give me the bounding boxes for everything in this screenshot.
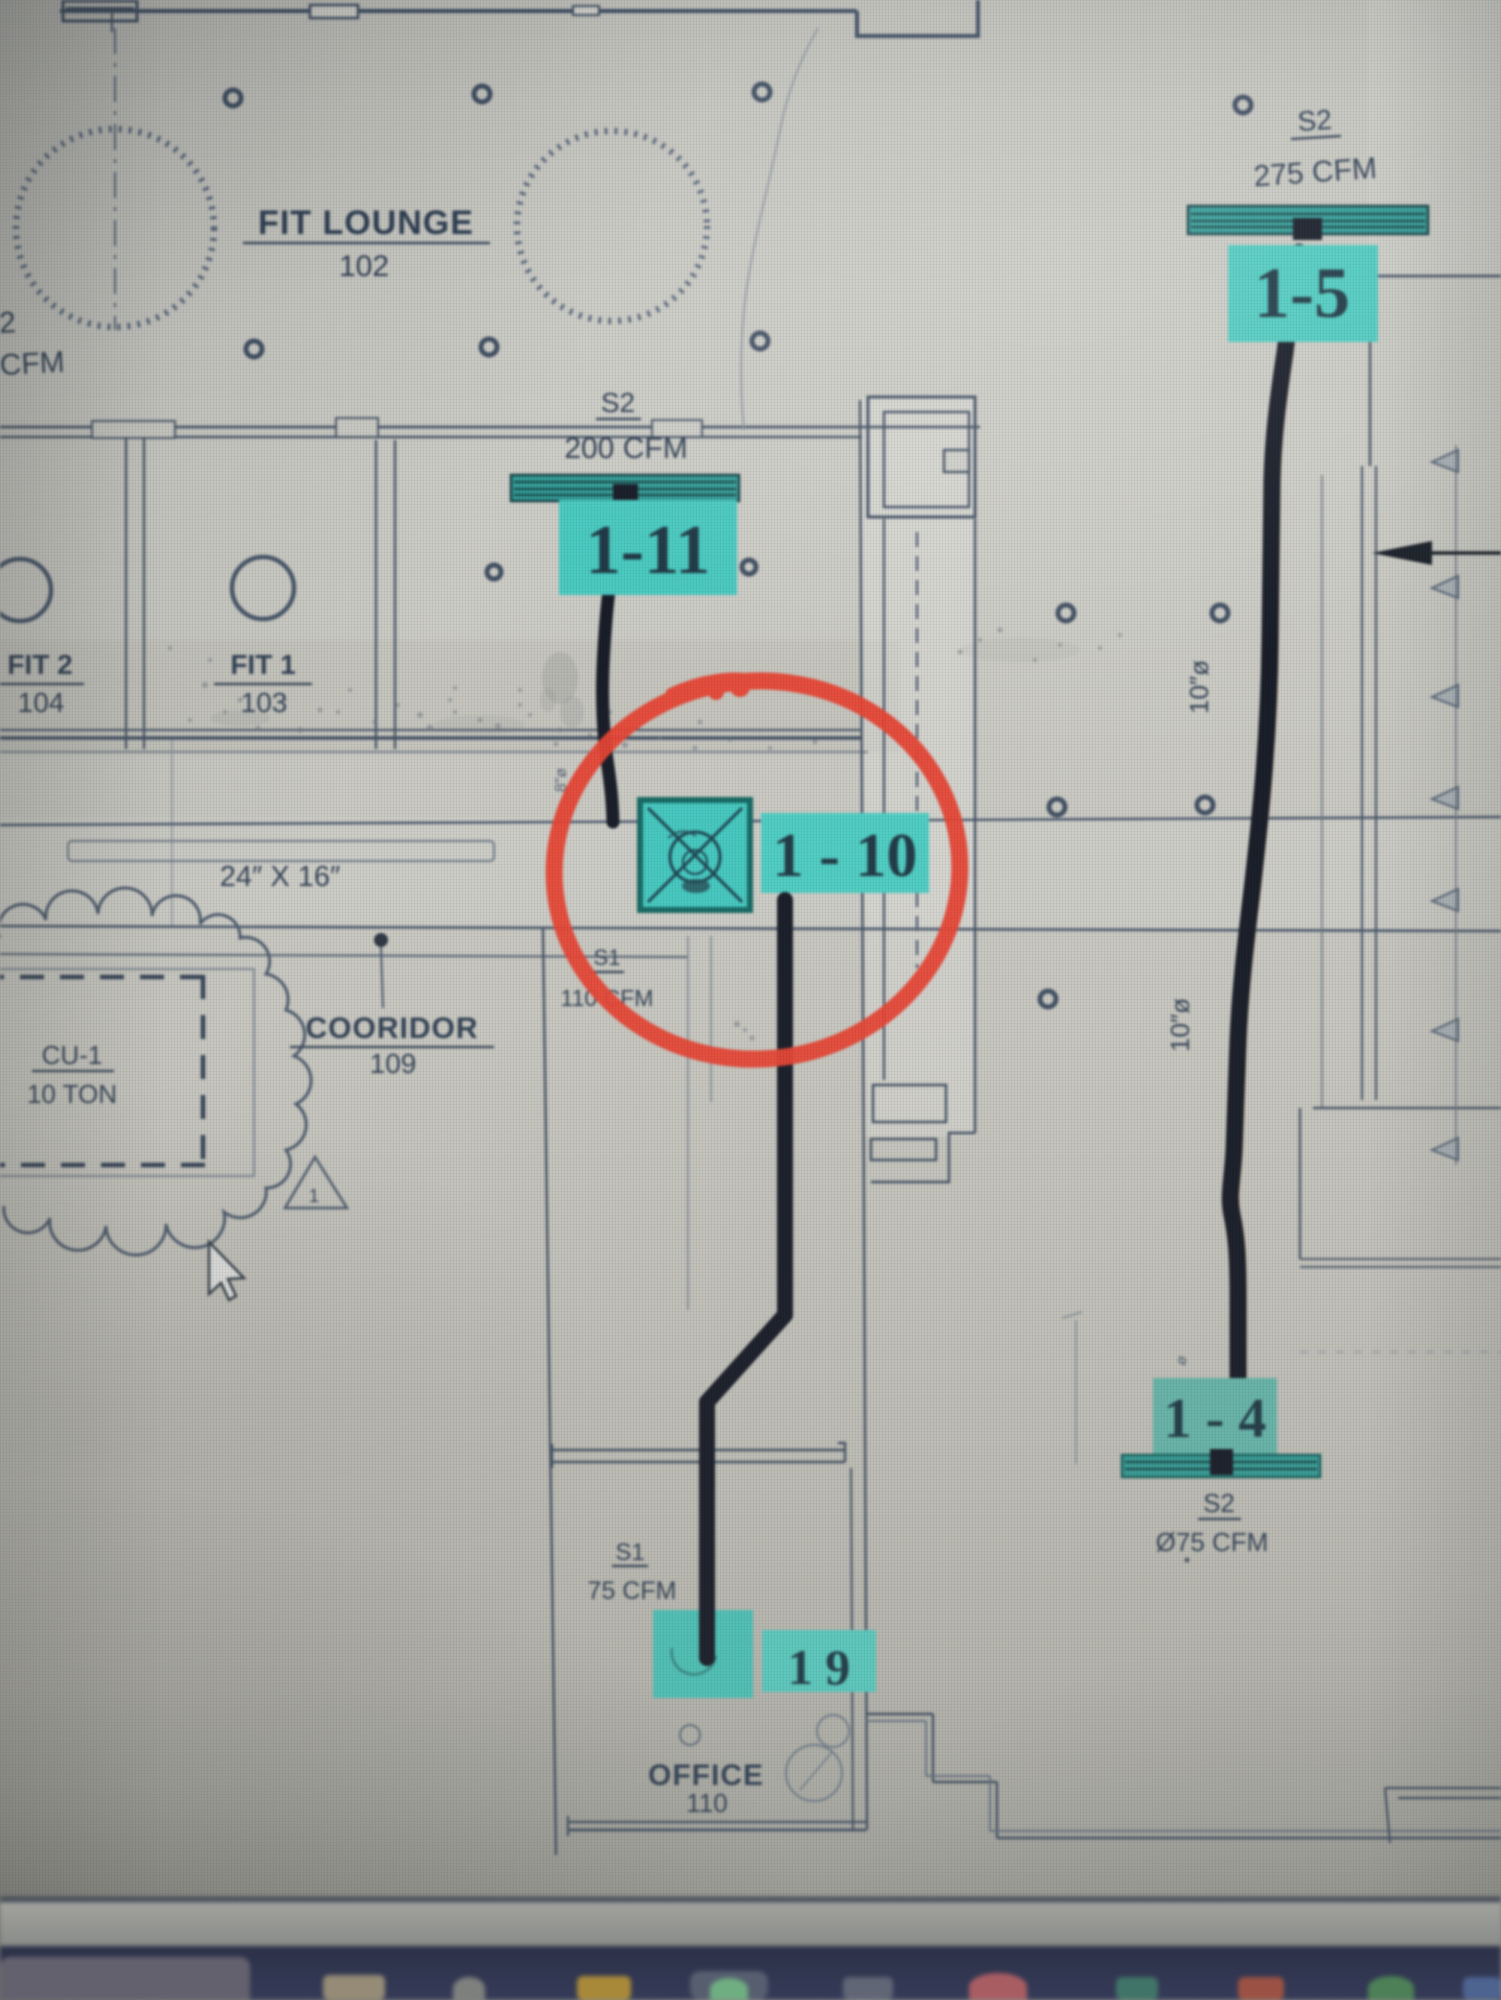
svg-text:10 TON: 10 TON — [27, 1079, 117, 1109]
svg-text:24″ X 16″: 24″ X 16″ — [220, 861, 341, 893]
svg-text:S2: S2 — [601, 387, 635, 418]
svg-text:S1: S1 — [615, 1539, 644, 1566]
svg-text:1 - 4: 1 - 4 — [1164, 1388, 1267, 1450]
svg-text:75 CFM: 75 CFM — [588, 1577, 677, 1605]
svg-text:FIT LOUNGE: FIT LOUNGE — [258, 204, 474, 242]
svg-text:CU-1: CU-1 — [42, 1040, 103, 1070]
svg-text:1 - 10: 1 - 10 — [773, 822, 918, 890]
svg-text:S2: S2 — [0, 306, 17, 341]
svg-text:1: 1 — [309, 1186, 319, 1206]
svg-text:FIT 2: FIT 2 — [7, 649, 72, 680]
svg-text:COORIDOR: COORIDOR — [306, 1012, 479, 1045]
svg-text:S2: S2 — [1296, 104, 1332, 137]
svg-text:1 9: 1 9 — [788, 1639, 851, 1695]
svg-text:Ø75 CFM: Ø75 CFM — [1156, 1527, 1269, 1557]
svg-text:275 CFM: 275 CFM — [0, 346, 65, 385]
svg-text:S1: S1 — [594, 945, 621, 970]
svg-text:10″ø: 10″ø — [1165, 998, 1195, 1052]
svg-text:103: 103 — [241, 687, 288, 718]
svg-text:275 CFM: 275 CFM — [1253, 152, 1378, 194]
svg-text:1-11: 1-11 — [586, 512, 710, 589]
svg-text:1-5: 1-5 — [1254, 253, 1350, 333]
svg-text:10″ø: 10″ø — [1184, 660, 1214, 714]
svg-text:ø: ø — [1172, 1353, 1191, 1367]
svg-text:109: 109 — [370, 1048, 417, 1079]
svg-text:110: 110 — [686, 1788, 727, 1818]
svg-text:200 CFM: 200 CFM — [564, 432, 687, 465]
svg-text:S2: S2 — [1203, 1488, 1235, 1518]
svg-text:102: 102 — [339, 250, 389, 283]
svg-text:FIT 1: FIT 1 — [230, 649, 295, 680]
svg-text:104: 104 — [18, 687, 65, 718]
